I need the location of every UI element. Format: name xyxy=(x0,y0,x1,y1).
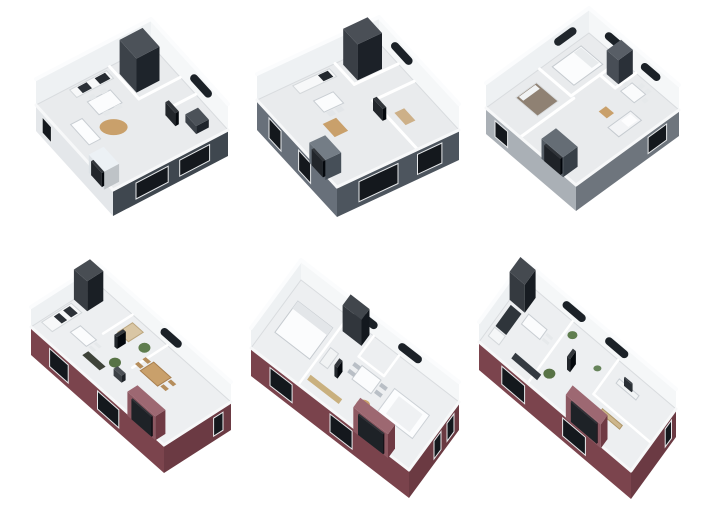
floor-plan-thumbnail-3[interactable] xyxy=(476,0,713,252)
floor-plan-thumbnail-4[interactable] xyxy=(0,252,238,505)
floor-plan-render-2 xyxy=(239,0,476,250)
floor-plan-render-4 xyxy=(1,252,238,502)
floor-plan-render-6 xyxy=(476,252,713,502)
floor-plan-thumbnail-6[interactable] xyxy=(476,252,713,505)
floor-plan-render-3 xyxy=(476,0,713,250)
floor-plan-thumbnail-1[interactable] xyxy=(0,0,238,252)
floor-plan-gallery xyxy=(0,0,713,505)
floor-plan-render-1 xyxy=(1,0,238,250)
floor-plan-thumbnail-2[interactable] xyxy=(238,0,476,252)
floor-plan-thumbnail-5[interactable] xyxy=(238,252,476,505)
floor-plan-render-5 xyxy=(239,252,476,502)
